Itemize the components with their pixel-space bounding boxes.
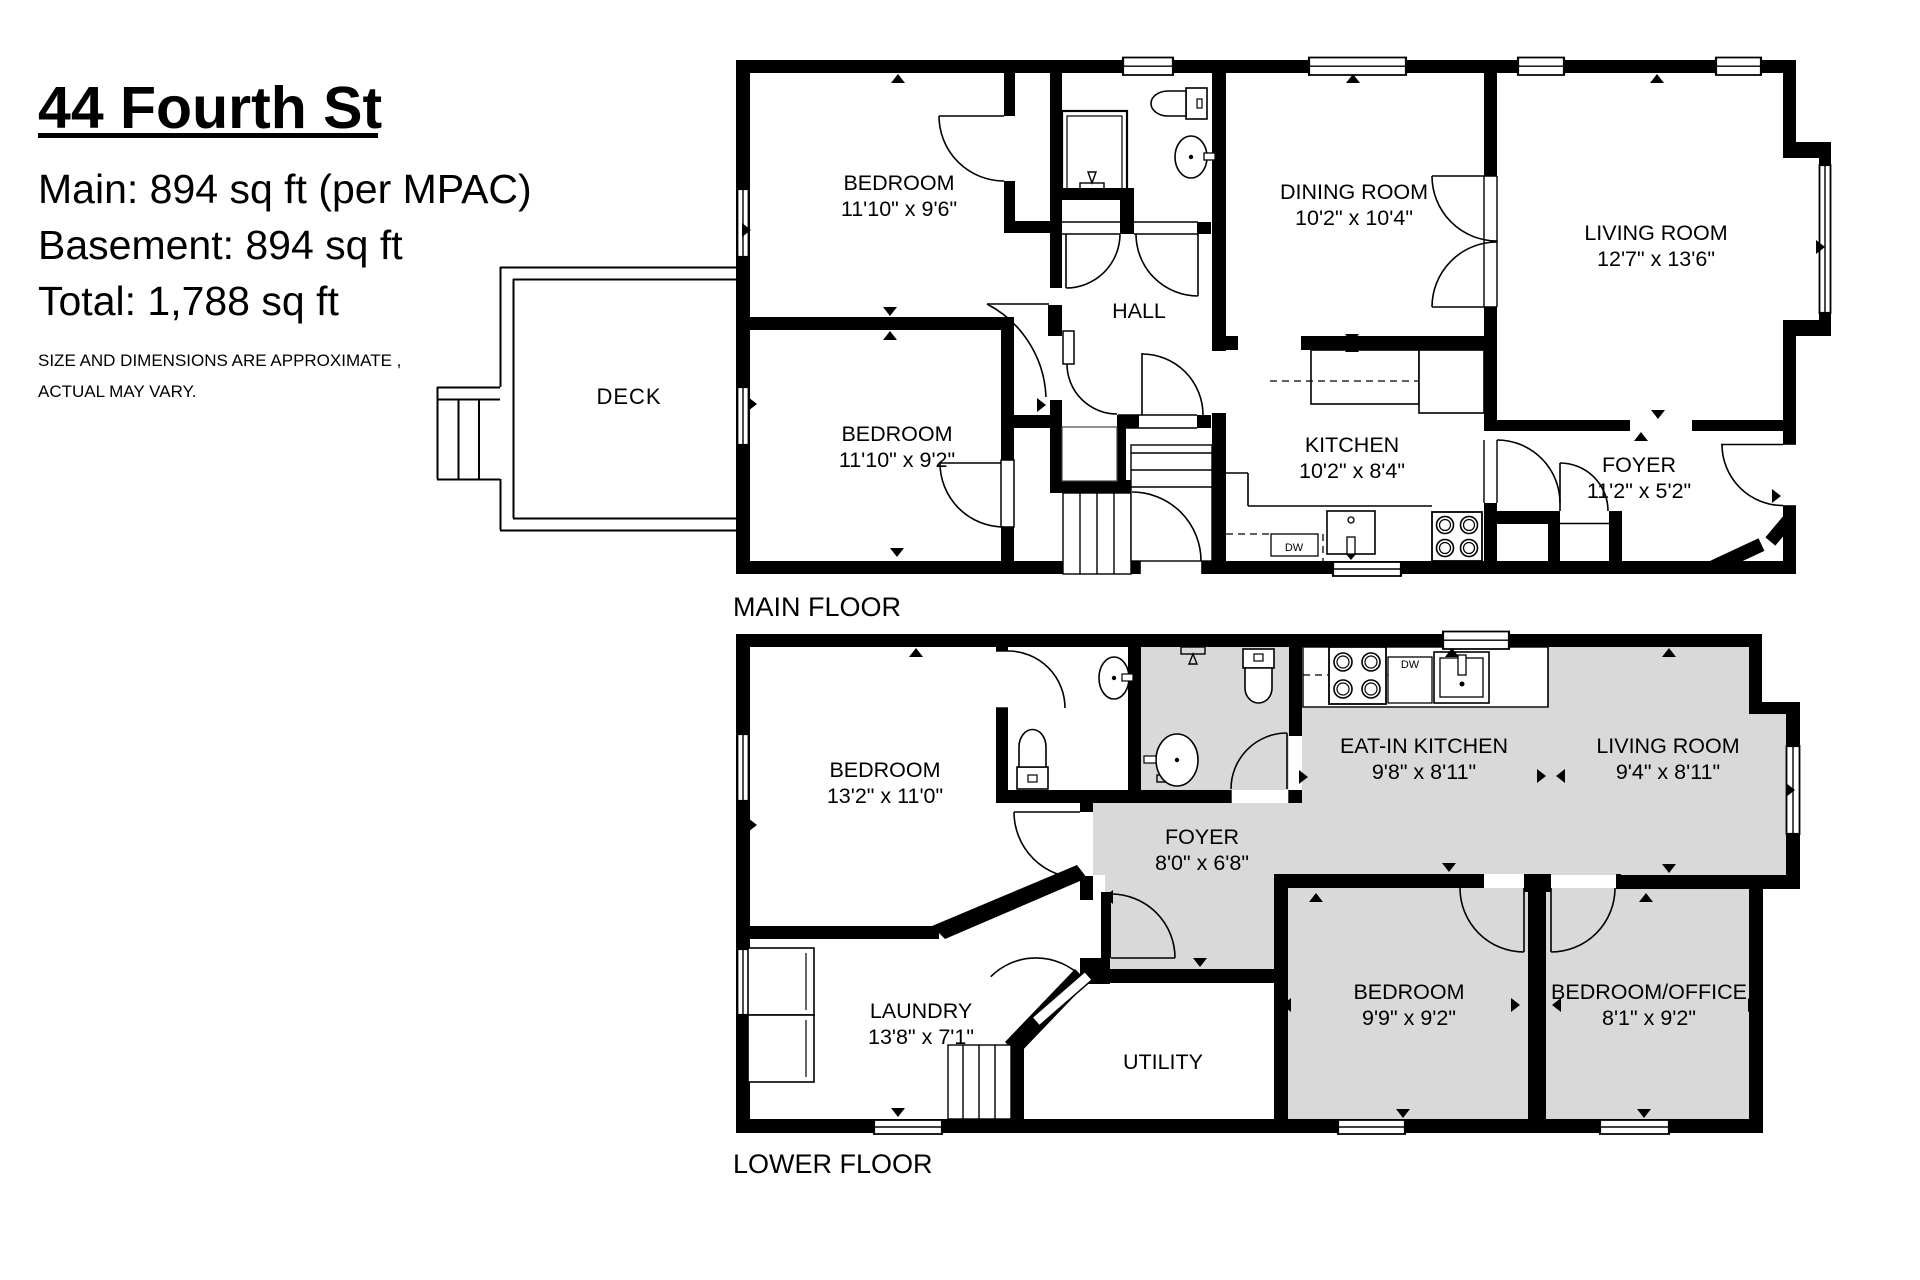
svg-text:DINING ROOM: DINING ROOM xyxy=(1280,180,1428,204)
svg-text:FOYER: FOYER xyxy=(1602,453,1676,477)
svg-text:LOWER FLOOR: LOWER FLOOR xyxy=(733,1149,933,1179)
svg-text:Main: 894 sq ft (per MPAC): Main: 894 sq ft (per MPAC) xyxy=(38,166,532,212)
svg-text:9'9" x 9'2": 9'9" x 9'2" xyxy=(1362,1006,1456,1030)
svg-text:10'2" x 10'4": 10'2" x 10'4" xyxy=(1295,206,1413,230)
svg-text:13'8" x 7'1": 13'8" x 7'1" xyxy=(868,1025,974,1049)
svg-text:UTILITY: UTILITY xyxy=(1123,1050,1203,1074)
svg-text:HALL: HALL xyxy=(1112,299,1166,323)
svg-text:9'4" x 8'11": 9'4" x 8'11" xyxy=(1616,760,1720,784)
svg-text:MAIN FLOOR: MAIN FLOOR xyxy=(733,592,901,622)
svg-text:10'2" x 8'4": 10'2" x 8'4" xyxy=(1299,459,1405,483)
svg-text:9'8" x 8'11": 9'8" x 8'11" xyxy=(1372,760,1476,784)
svg-text:SIZE AND DIMENSIONS ARE APPROX: SIZE AND DIMENSIONS ARE APPROXIMATE , xyxy=(38,351,401,370)
svg-text:LAUNDRY: LAUNDRY xyxy=(870,999,972,1023)
svg-text:BEDROOM: BEDROOM xyxy=(841,422,952,446)
svg-text:13'2" x 11'0": 13'2" x 11'0" xyxy=(827,784,943,808)
svg-text:DW: DW xyxy=(1401,659,1420,671)
svg-text:BEDROOM: BEDROOM xyxy=(829,758,940,782)
svg-text:44 Fourth St: 44 Fourth St xyxy=(38,75,382,141)
svg-text:ACTUAL MAY VARY.: ACTUAL MAY VARY. xyxy=(38,382,196,401)
svg-text:11'10" x 9'6": 11'10" x 9'6" xyxy=(841,197,957,221)
svg-text:KITCHEN: KITCHEN xyxy=(1305,433,1399,457)
svg-text:8'0" x 6'8": 8'0" x 6'8" xyxy=(1155,851,1249,875)
svg-text:DECK: DECK xyxy=(596,384,661,409)
svg-text:LIVING ROOM: LIVING ROOM xyxy=(1584,221,1727,245)
svg-text:11'2" x 5'2": 11'2" x 5'2" xyxy=(1587,479,1691,503)
svg-text:LIVING ROOM: LIVING ROOM xyxy=(1596,734,1739,758)
svg-text:12'7" x 13'6": 12'7" x 13'6" xyxy=(1597,247,1715,271)
svg-text:Total: 1,788 sq ft: Total: 1,788 sq ft xyxy=(38,278,339,324)
svg-text:BEDROOM: BEDROOM xyxy=(1353,980,1464,1004)
svg-text:11'10" x 9'2": 11'10" x 9'2" xyxy=(839,448,955,472)
svg-text:8'1" x 9'2": 8'1" x 9'2" xyxy=(1602,1006,1696,1030)
svg-text:BEDROOM: BEDROOM xyxy=(843,171,954,195)
svg-text:BEDROOM/OFFICE: BEDROOM/OFFICE xyxy=(1551,980,1747,1004)
svg-text:DW: DW xyxy=(1285,542,1304,554)
svg-text:FOYER: FOYER xyxy=(1165,825,1239,849)
svg-text:Basement: 894 sq ft: Basement: 894 sq ft xyxy=(38,222,403,268)
svg-text:EAT-IN KITCHEN: EAT-IN KITCHEN xyxy=(1340,734,1508,758)
